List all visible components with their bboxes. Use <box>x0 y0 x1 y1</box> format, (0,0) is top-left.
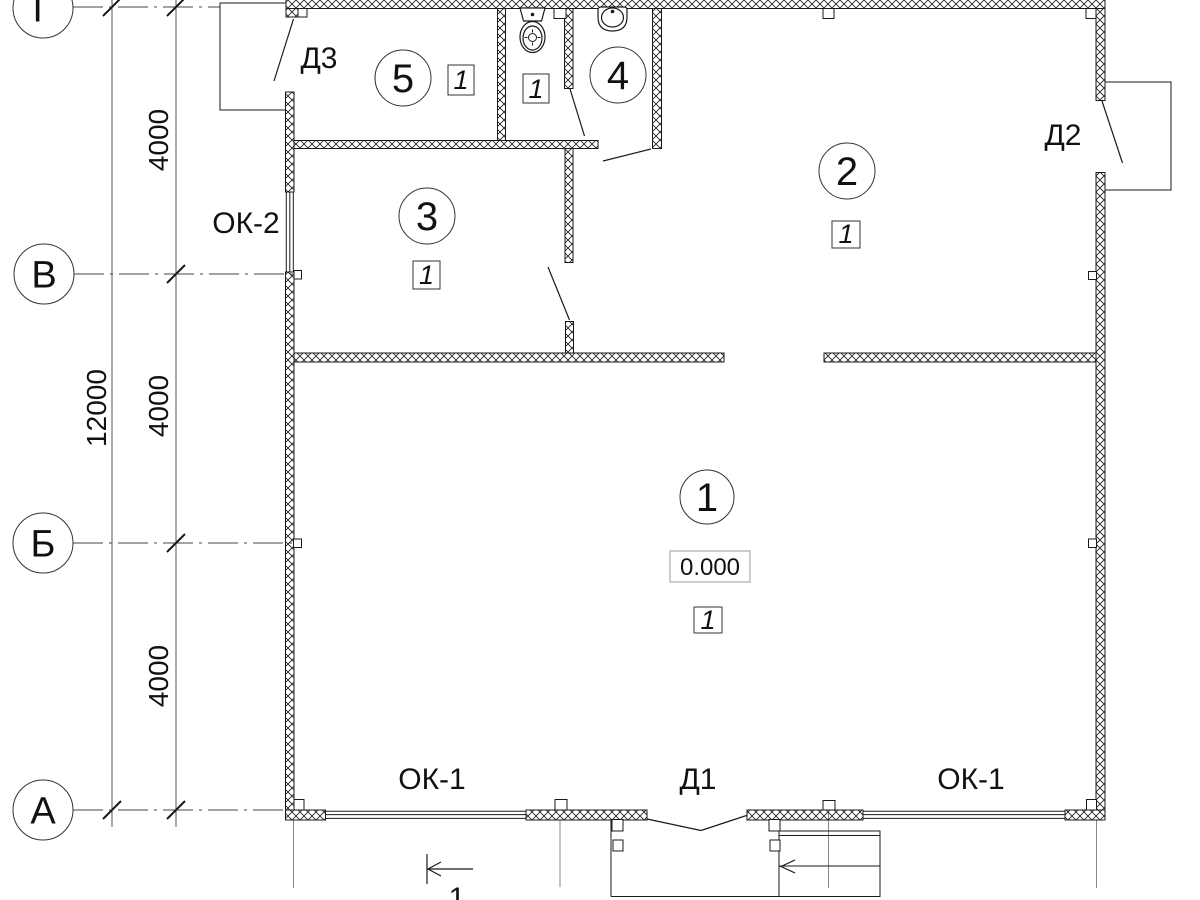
wall-room5-wc <box>498 9 506 141</box>
door-label-d2: Д2 <box>1044 119 1081 152</box>
room3-floor-label: 1 <box>419 260 434 290</box>
entrance-porch <box>611 820 880 897</box>
window-ok1-right <box>863 811 1065 818</box>
porch-top-left <box>220 3 286 110</box>
axis-label-a: А <box>30 791 56 833</box>
axis-marker <box>823 801 835 811</box>
room2-number: 2 <box>836 150 858 194</box>
porch-right-d2 <box>1105 82 1171 190</box>
room2-floor-label: 1 <box>838 219 853 249</box>
sink-faucet <box>611 10 615 14</box>
porch-post <box>613 840 623 851</box>
room-bubbles: 5 4 3 2 1 <box>375 47 875 524</box>
axis-marker <box>294 800 304 811</box>
wall-bottom-right-corner <box>1065 810 1105 820</box>
window-ok1-left <box>326 811 527 818</box>
dimension-texts: 4000 4000 4000 12000 <box>81 109 174 707</box>
floor-type-boxes: 1 1 1 1 1 <box>413 65 860 635</box>
wall-wc-room4 <box>565 9 574 89</box>
door-leaf-d1-left <box>647 819 701 831</box>
axis-label-g: Г <box>33 0 54 31</box>
wall-room1-north-right <box>824 353 1096 362</box>
wall-bottom-left-corner <box>286 810 326 820</box>
room5-number: 5 <box>392 57 414 101</box>
porch-post <box>770 840 780 851</box>
axis-marker <box>294 271 302 280</box>
door-label-d3: Д3 <box>300 42 337 75</box>
opening-labels: Д3 ОК-2 Д2 ОК-1 Д1 ОК-1 <box>212 42 1081 796</box>
wall-bottom-right-of-door <box>747 810 863 820</box>
room4-number: 4 <box>607 54 629 98</box>
floor-plan: Г В Б А 4000 4000 4000 12000 <box>0 0 1200 900</box>
axis-marker <box>554 9 566 19</box>
axis-bubbles: Г В Б А <box>13 0 74 840</box>
section-mark: 1 <box>427 854 473 900</box>
room5-floor-label: 1 <box>453 65 468 95</box>
toilet-button <box>531 13 535 17</box>
room3-number: 3 <box>416 195 438 239</box>
wall-room5-room3 <box>294 141 598 149</box>
axis-marker <box>823 9 834 19</box>
wall-right-lower <box>1096 173 1105 811</box>
axis-marker <box>298 9 307 18</box>
wc-floor-label: 1 <box>528 74 543 104</box>
room1-floor-label: 1 <box>700 605 715 635</box>
porch-post <box>769 820 780 832</box>
axis-marker <box>294 539 302 548</box>
dim-4000-top: 4000 <box>143 109 174 171</box>
window-ok2 <box>286 192 293 272</box>
elevation-mark: 0.000 <box>670 551 750 582</box>
axis-marker <box>1086 9 1096 19</box>
exterior-walls <box>286 0 1106 820</box>
axis-label-b: Б <box>31 524 56 566</box>
door-leaf-room3 <box>548 267 570 320</box>
elevation-value: 0.000 <box>680 554 740 581</box>
door-label-d1: Д1 <box>679 763 716 796</box>
wall-left-lower <box>286 272 295 810</box>
sink-icon <box>598 7 627 31</box>
wall-bottom-mid <box>526 810 647 820</box>
porch-post <box>612 820 623 832</box>
axis-marker <box>555 800 567 811</box>
wall-top <box>286 0 1105 9</box>
section-label: 1 <box>449 882 466 900</box>
dim-4000-bottom: 4000 <box>143 645 174 707</box>
door-leaf-d1-right <box>701 816 747 831</box>
axis-wall-markers <box>294 9 1097 811</box>
toilet-icon <box>520 8 545 53</box>
axis-marker <box>1087 800 1097 811</box>
wall-top-left-return <box>286 9 298 18</box>
window-label-ok1-right: ОК-1 <box>937 763 1005 796</box>
room1-number: 1 <box>696 476 718 520</box>
axis-marker <box>1089 539 1097 548</box>
window-label-ok1-left: ОК-1 <box>398 763 466 796</box>
grid-lines <box>73 0 1097 888</box>
wall-room3-stub <box>566 322 574 354</box>
wall-left-upper <box>286 92 295 192</box>
axis-label-v: В <box>31 255 56 297</box>
window-label-ok2: ОК-2 <box>212 207 280 240</box>
door-leaf-d2 <box>1102 101 1123 163</box>
entrance-stairs <box>779 831 880 897</box>
wall-room3-upper <box>565 149 573 263</box>
dim-12000-total: 12000 <box>81 369 112 447</box>
wall-room1-north-left <box>294 353 724 362</box>
axis-marker <box>1089 272 1097 280</box>
door-leaf-room4 <box>603 149 651 161</box>
wall-right-upper <box>1096 9 1105 101</box>
windows <box>286 192 1065 818</box>
dim-4000-mid: 4000 <box>143 375 174 437</box>
wall-room4-room2 <box>653 9 662 149</box>
door-leaf-wc <box>570 89 585 136</box>
floor-plan-canvas: Г В Б А 4000 4000 4000 12000 <box>0 0 1200 900</box>
door-leaf-d3 <box>274 19 294 81</box>
